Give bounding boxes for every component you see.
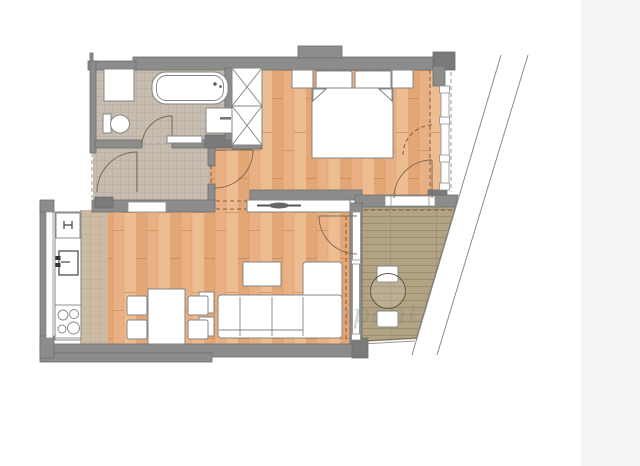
entry-door-threshold xyxy=(128,202,166,212)
bathtub xyxy=(152,72,228,104)
bathroom-sink xyxy=(206,108,232,133)
wall-top xyxy=(133,57,445,70)
nightstand-left xyxy=(292,70,313,88)
tv-area xyxy=(247,200,350,212)
bedroom-balcony-door-threshold xyxy=(388,196,432,206)
sink-tap-knob xyxy=(56,263,61,267)
washing-machine xyxy=(104,69,134,101)
kitchen-sink xyxy=(59,251,78,275)
balcony-table xyxy=(371,274,406,309)
dining-table xyxy=(148,289,185,344)
kitchen-floor-strip xyxy=(80,210,108,346)
bathtub-faucet xyxy=(213,82,216,85)
nightstand-right xyxy=(392,70,413,88)
wardrobe-body xyxy=(232,68,262,145)
sink-faucet xyxy=(220,117,231,120)
wall-under-wardrobe xyxy=(232,145,262,149)
wall-nook-stub-upper xyxy=(208,148,215,166)
living-balcony-door-opening xyxy=(353,212,361,260)
dining-chair xyxy=(127,296,147,315)
wall-west-south-corner xyxy=(40,336,54,358)
bed xyxy=(312,88,393,158)
floor-plan-page: ingatlanpont xyxy=(0,0,640,466)
wall-bedroom-east-upper xyxy=(433,66,445,86)
tv-screen xyxy=(269,203,289,209)
sink-tap-knob xyxy=(56,256,61,260)
hallway-floor xyxy=(93,148,210,205)
sofa-base xyxy=(218,295,342,338)
kitchen-counter xyxy=(55,212,81,340)
wall-south-thick xyxy=(40,353,212,362)
bedroom-window-post xyxy=(440,183,450,190)
bedroom-window xyxy=(441,86,449,190)
radiator xyxy=(167,136,202,143)
wardrobe xyxy=(232,68,262,145)
dining-chair xyxy=(188,296,208,315)
wall-south-end-block xyxy=(352,338,368,358)
right-panel-strip xyxy=(581,0,640,466)
wall-west-lower xyxy=(40,203,46,355)
toilet-bowl xyxy=(111,115,130,133)
bedroom-window-post xyxy=(440,117,450,124)
coffee-table xyxy=(243,262,281,286)
wall-bedroom-south xyxy=(250,190,362,200)
dining-chair xyxy=(188,320,208,339)
wall-west-upper xyxy=(90,61,96,153)
kitchen-window xyxy=(46,212,53,338)
bedroom-window-post xyxy=(440,155,450,162)
wall-top-pillar xyxy=(298,46,342,58)
threshold-post xyxy=(385,196,391,206)
bathtub-drain xyxy=(219,85,222,88)
floor-plan-drawing: ingatlanpont xyxy=(0,0,640,466)
wall-west-kitchen-corner xyxy=(40,200,54,212)
wall-bathroom-south-left xyxy=(95,140,142,148)
dining-chair xyxy=(127,320,147,339)
bedroom-window-post xyxy=(440,86,450,93)
balcony-chair-lower xyxy=(377,311,398,327)
living-window-post xyxy=(352,334,361,340)
toilet-tank xyxy=(103,114,111,133)
entry-step-block xyxy=(95,197,113,208)
kitchen xyxy=(55,212,81,340)
